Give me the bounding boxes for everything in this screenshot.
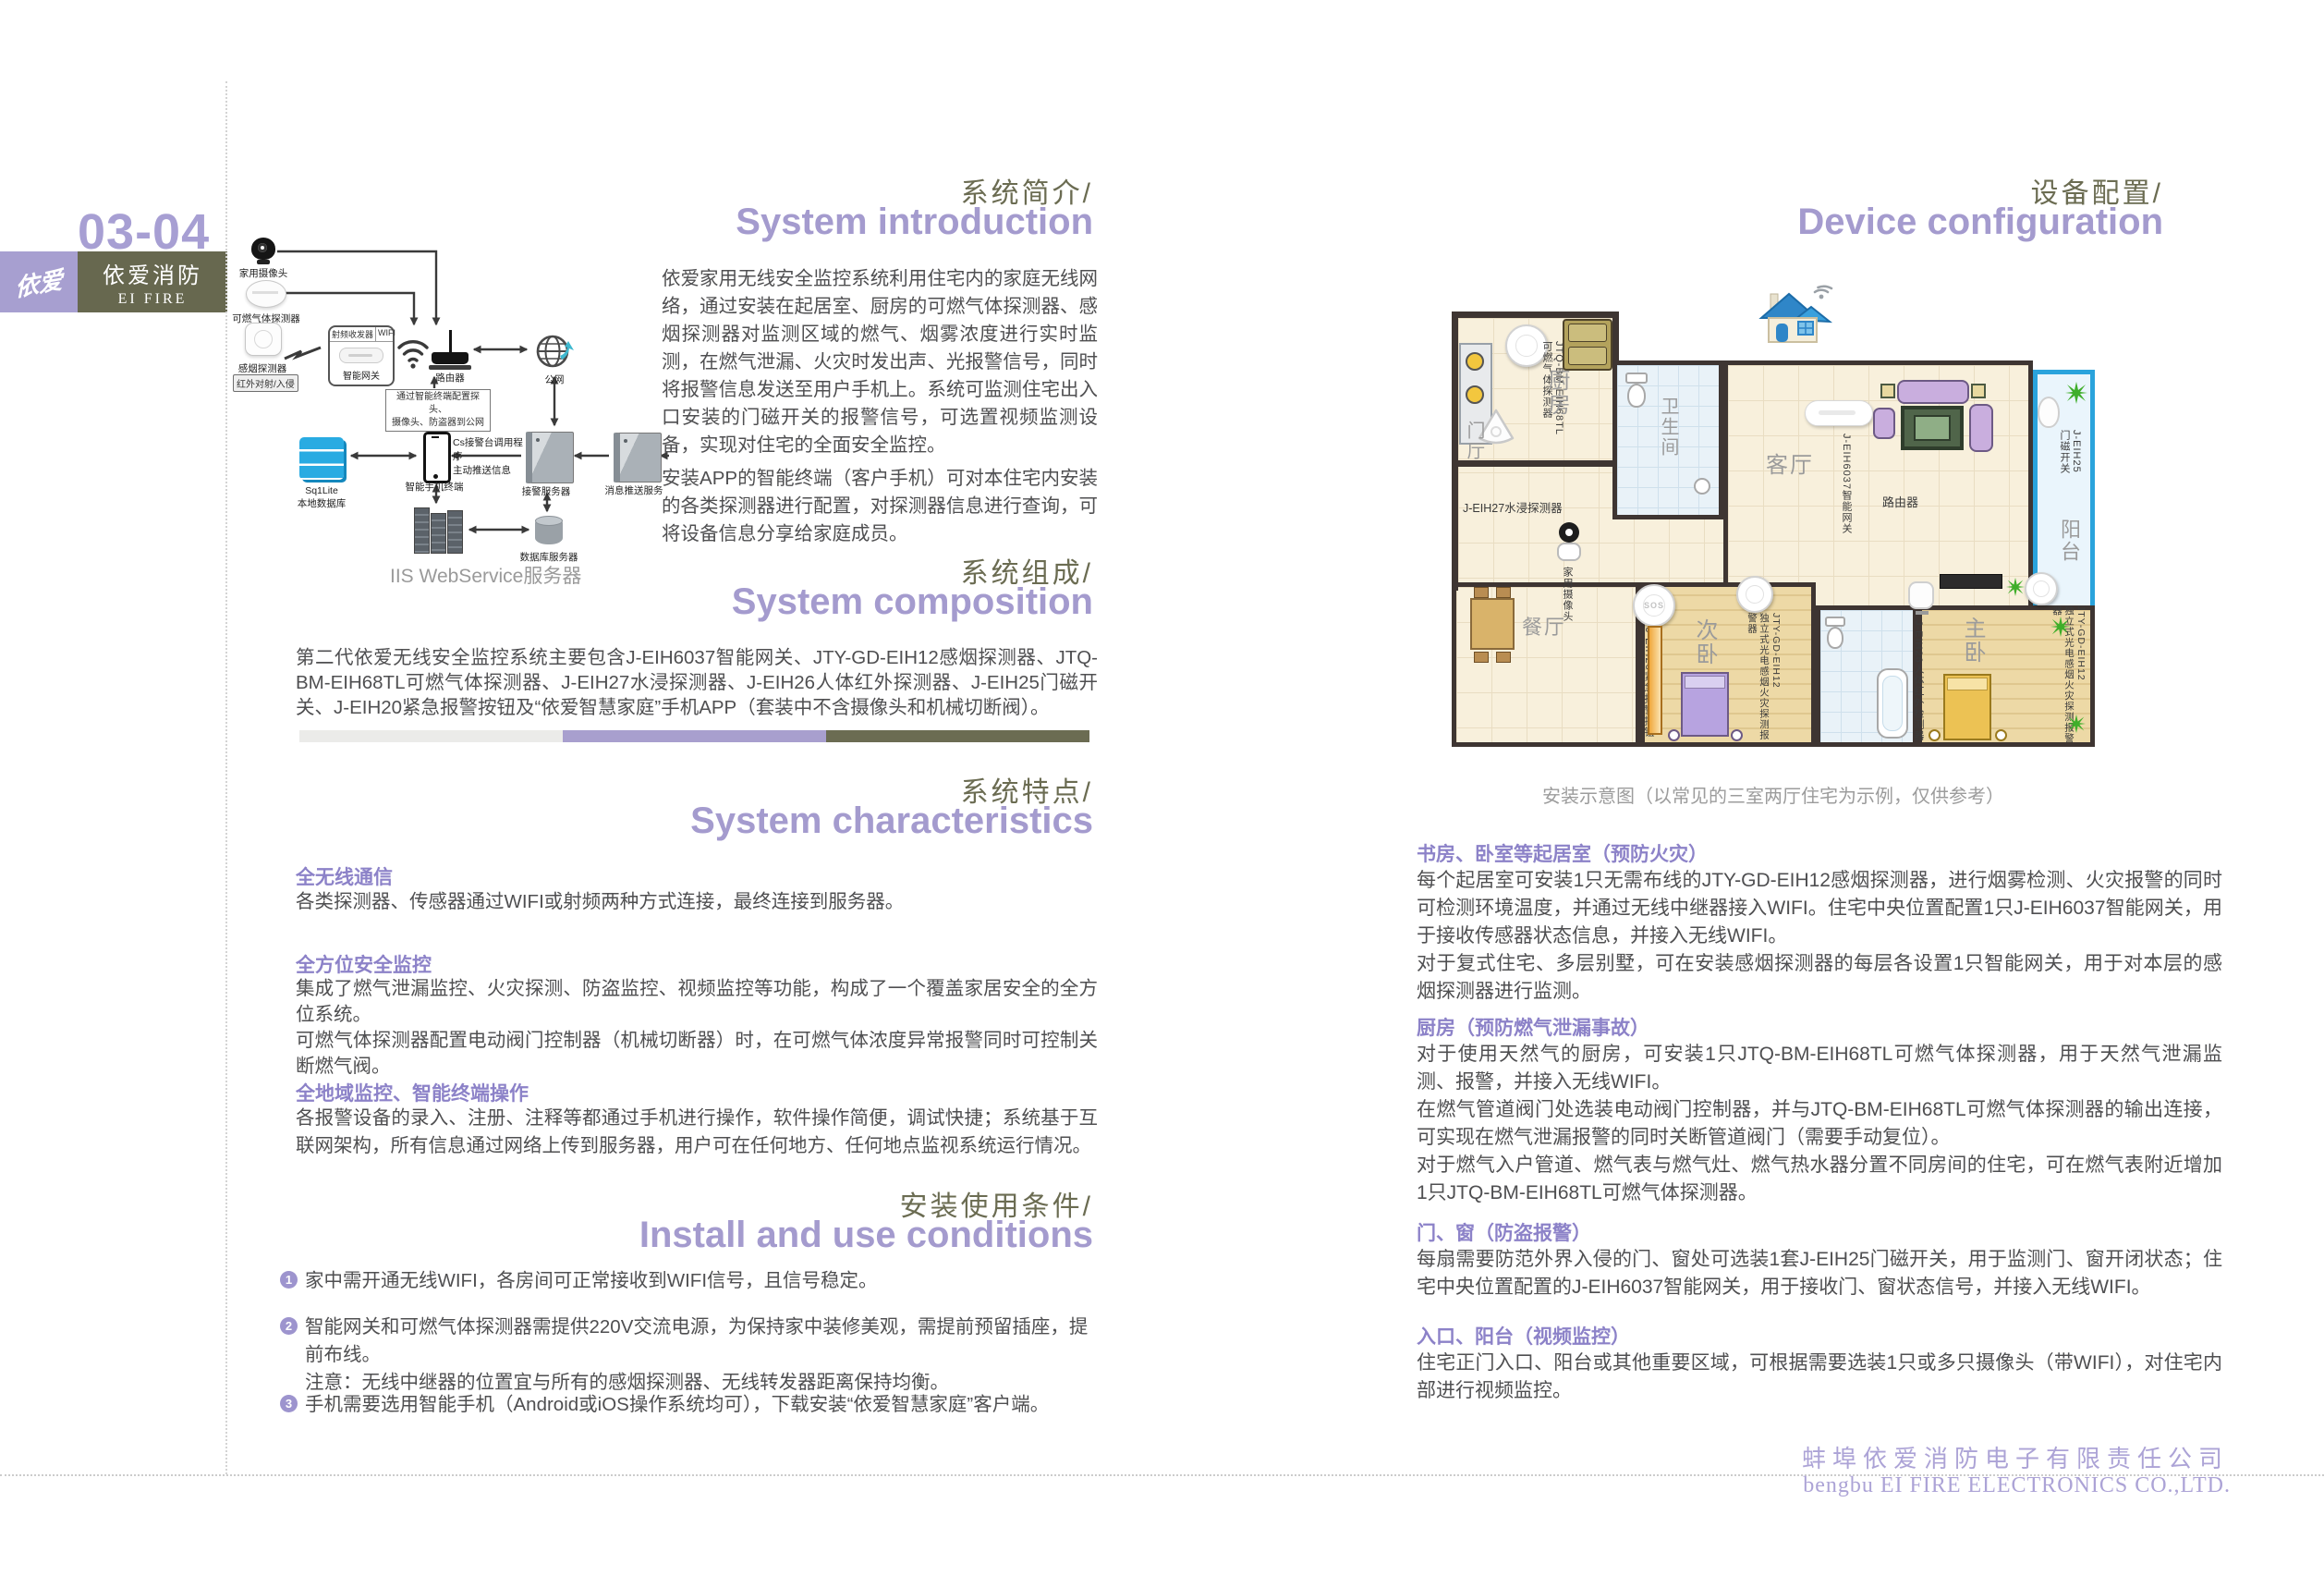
toilet-tank-icon <box>1825 617 1845 627</box>
chair-icon <box>1474 652 1489 663</box>
smartphone-icon <box>423 432 451 483</box>
item-number-badge: 2 <box>280 1317 298 1335</box>
infrared-intrusion-box: 红外对射/入侵 <box>233 374 298 392</box>
router-antenna-icon <box>449 330 452 354</box>
characteristics-title-en: System characteristics <box>690 800 1093 842</box>
brand-name-cn: 依爱消防 <box>103 257 202 289</box>
device-label: JTY-GD-EIH12 独立式光电感烟火灾探测报警器 <box>1746 613 1782 744</box>
composition-paragraph: 第二代依爱无线安全监控系统主要包含J-EIH6037智能网关、JTY-GD-EI… <box>296 645 1098 720</box>
sqlite-label: Sq1Lite 本地数据库 <box>288 485 355 510</box>
device-label: J-EIH6037智能网关 <box>1840 434 1852 563</box>
floorplan-caption: 安装示意图（以常见的三室两厅住宅为示例，仅供参考） <box>1452 781 2095 808</box>
room-label-balcony: 阳台 <box>2054 519 2084 563</box>
iis-server-icon <box>431 513 446 554</box>
gateway-box: 射频收发器 WIFI 智能网关 <box>328 325 395 386</box>
device-label: J-EIH27水浸探测器 <box>1463 498 1563 516</box>
section-body: 每个起居室可安装1只无需布线的JTY-GD-EIH12感烟探测器，进行烟雾检测、… <box>1417 867 2222 1006</box>
characteristic-heading: 全地域监控、智能终端操作 <box>296 1079 529 1106</box>
chair-icon <box>1496 652 1511 663</box>
diagram-camera-label: 家用摄像头 <box>233 266 294 280</box>
webcam-icon <box>251 238 275 260</box>
burner-icon <box>1466 385 1484 404</box>
plant-icon <box>2006 578 2025 596</box>
divider-bar-gray <box>299 730 563 742</box>
brand-name-en: EI FIRE <box>118 291 188 308</box>
pir-base-icon <box>1916 611 1929 615</box>
section-heading: 书房、卧室等起居室（预防火灾） <box>1417 839 1708 867</box>
diagram-internet-label: 公网 <box>534 373 575 386</box>
smoke-detector-icon <box>2025 572 2058 605</box>
install-title-en: Install and use conditions <box>639 1215 1093 1256</box>
room-label-master: 主卧 <box>1956 617 1989 665</box>
side-table-icon <box>1971 384 1986 398</box>
wardrobe-icon <box>1648 626 1662 735</box>
intro-paragraph-2: 安装APP的智能终端（客户手机）可对本住宅内安装的各类探测器进行配置，对探测器信… <box>662 465 1098 548</box>
sidebar-divider <box>225 81 227 1474</box>
internet-globe-icon <box>534 334 577 371</box>
chair-icon <box>1496 587 1511 598</box>
plant-icon <box>2067 715 2086 733</box>
device-label: J-EIH26人体红外检测器 <box>1912 620 1924 742</box>
iis-webservice-caption: IIS WebService服务器 <box>390 561 581 589</box>
wifi-icon <box>395 336 431 369</box>
dining-table-icon <box>1470 598 1515 650</box>
iis-server-icon <box>447 510 463 554</box>
coffee-table-icon <box>1914 415 1951 441</box>
sos-button-icon: SOS <box>1633 584 1675 627</box>
pillow-icon <box>1947 678 1988 690</box>
section-heading: 入口、阳台（视频监控） <box>1417 1322 1630 1350</box>
floor-plan: JTQ-BM-EIH68TL 可燃气体探测器 J-EIH27水浸探测器 厨房 卫… <box>1452 311 2095 747</box>
nightstand-icon <box>1731 729 1743 741</box>
tv-console-icon <box>1940 574 2002 589</box>
sink-basin-icon <box>1568 324 1607 342</box>
characteristic-body: 各报警设备的录入、注册、注释等都通过手机进行操作，软件操作简便，调试快捷；系统基… <box>296 1105 1098 1160</box>
diagram-note-box: 通过智能终端配置探头、 摄像头、防盗器到公网 <box>385 389 491 432</box>
side-table-icon <box>1880 384 1895 398</box>
sofa-icon <box>1897 380 1969 404</box>
alarm-server-label: 接警服务器 <box>514 484 578 498</box>
chair-icon <box>1474 587 1489 598</box>
brand-name-box: 依爱消防 EI FIRE <box>78 251 227 312</box>
toilet-tank-icon <box>1625 373 1648 384</box>
company-name-en: bengbu EI FIRE ELECTRONICS CO.,LTD. <box>1803 1473 2231 1498</box>
characteristic-body: 各类探测器、传感器通过WIFI或射频两种方式连接，最终连接到服务器。 <box>296 888 1098 916</box>
iis-server-icon <box>414 507 430 554</box>
room-label-living: 客厅 <box>1766 446 1814 479</box>
diagram-smoke-label: 感烟探测器 <box>232 361 293 375</box>
intro-title-en: System introduction <box>736 202 1093 243</box>
washbasin-icon <box>1694 478 1710 495</box>
install-item-text: 家中需开通无线WIFI，各房间可正常接收到WIFI信号，且信号稳定。 <box>305 1267 878 1295</box>
item-number-badge: 1 <box>280 1271 298 1289</box>
room-label-bathroom: 卫生间 <box>1655 397 1682 458</box>
gateway-device-icon <box>1805 400 1873 426</box>
gateway-header: 射频收发器 WIFI <box>330 327 393 342</box>
item-number-badge: 3 <box>280 1395 298 1412</box>
device-label: J-EIH25 门磁开关 <box>2058 430 2082 513</box>
device-label: 路由器 <box>1882 493 1918 510</box>
install-item-text: 手机需要选用智能手机（Android或iOS操作系统均可），下载安装“依爱智慧家… <box>305 1391 1049 1419</box>
camera-body-icon <box>1557 543 1581 561</box>
room-label-kitchen: 厨房 <box>1540 369 1573 417</box>
brand-logo: 依爱 <box>0 251 78 312</box>
composition-title-en: System composition <box>732 581 1093 623</box>
room-label-hall: 门厅 <box>1461 421 1488 461</box>
section-heading: 厨房（预防燃气泄漏事故） <box>1417 1013 1649 1041</box>
push-server-label: 消息推送服务 <box>599 483 669 497</box>
rf-transceiver-label: 射频收发器 <box>330 327 375 341</box>
push-server-icon <box>614 433 662 483</box>
pir-detector-icon <box>1908 581 1934 609</box>
webcam-base-icon <box>257 260 270 264</box>
armchair-icon <box>1873 408 1895 439</box>
wifi-tag-label: WIFI <box>375 327 397 341</box>
gateway-device-icon <box>339 348 383 363</box>
section-body: 住宅正门入口、阳台或其他重要区域，可根据需要选装1只或多只摄像头（带WIFI），… <box>1417 1350 2222 1405</box>
db-server-icon <box>535 517 563 544</box>
sos-text: SOS <box>1635 586 1673 625</box>
divider-bar-purple <box>563 730 826 742</box>
install-item: 3 手机需要选用智能手机（Android或iOS操作系统均可），下载安装“依爱智… <box>280 1391 1093 1419</box>
install-item-text: 智能网关和可燃气体探测器需提供220V交流电源，为保持家中装修美观，需提前预留插… <box>305 1313 1093 1397</box>
divider-bar-olive <box>826 730 1089 742</box>
camera-lens-icon <box>1565 529 1573 536</box>
sofa-icon <box>1969 404 1993 452</box>
nightstand-icon <box>1995 729 2007 741</box>
install-item: 1 家中需开通无线WIFI，各房间可正常接收到WIFI信号，且信号稳定。 <box>280 1267 1093 1295</box>
diagram-router-label: 路由器 <box>429 371 471 385</box>
sink-basin-icon <box>1568 347 1607 365</box>
characteristic-heading: 全无线通信 <box>296 862 393 890</box>
section-body: 每扇需要防范外界入侵的门、窗处可选装1套J-EIH25门磁开关，用于监测门、窗开… <box>1417 1246 2222 1301</box>
characteristic-body: 集成了燃气泄漏监控、火灾探测、防盗监控、视频监控等功能，构成了一个覆盖家居安全的… <box>296 976 1098 1080</box>
sqlite-database-icon <box>299 437 344 480</box>
section-body: 对于使用天然气的厨房，可安装1只JTQ-BM-EIH68TL可燃气体探测器，用于… <box>1417 1041 2222 1207</box>
company-name-cn: 蚌埠依爱消防电子有限责任公司 <box>1802 1440 2229 1474</box>
gateway-label: 智能网关 <box>330 368 393 382</box>
bathtub-inner-icon <box>1882 676 1903 731</box>
nightstand-icon <box>1668 729 1680 741</box>
smoke-detector-icon <box>245 323 282 356</box>
nightstand-icon <box>1929 729 1941 741</box>
system-architecture-diagram: 家用摄像头 可燃气体探测器 感烟探测器 红外对射/入侵 射频收发器 WIFI 智… <box>231 236 670 596</box>
toilet-bowl-icon <box>1827 627 1843 649</box>
room-label-bedroom2: 次卧 <box>1688 618 1721 666</box>
plant-icon <box>2065 382 2087 404</box>
room-label-dining: 餐厅 <box>1522 611 1566 641</box>
smoke-detector-icon <box>1736 576 1773 613</box>
pillow-icon <box>1685 676 1725 689</box>
cs-push-note: Cs接警台调用程序 主动推送信息 <box>453 435 529 477</box>
toilet-bowl-icon <box>1627 384 1646 408</box>
intro-paragraph-1: 依爱家用无线安全监控系统利用住宅内的家庭无线网络，通过安装在起居室、厨房的可燃气… <box>662 265 1098 459</box>
wall-segment <box>1452 461 1458 591</box>
section-heading: 门、窗（防盗报警） <box>1417 1218 1591 1246</box>
alarm-server-icon <box>526 432 574 483</box>
door-switch-icon <box>2038 397 2060 428</box>
router-icon <box>432 352 468 364</box>
install-item: 2 智能网关和可燃气体探测器需提供220V交流电源，为保持家中装修美观，需提前预… <box>280 1313 1093 1397</box>
gas-detector-icon <box>246 280 286 308</box>
diagram-phone-label: 智能手机终端 <box>401 480 468 494</box>
brand-logo-icon: 依爱 <box>15 261 64 303</box>
burner-icon <box>1466 352 1484 371</box>
router-base-icon <box>429 365 471 370</box>
characteristic-heading: 全方位安全监控 <box>296 950 432 978</box>
device-config-title-en: Device configuration <box>1797 202 2163 243</box>
